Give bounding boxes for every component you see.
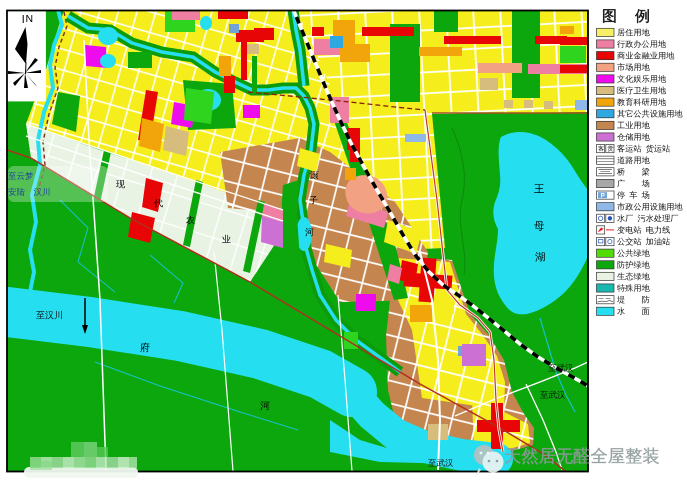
- svg-text:N: N: [26, 13, 34, 25]
- svg-text:P: P: [601, 193, 606, 200]
